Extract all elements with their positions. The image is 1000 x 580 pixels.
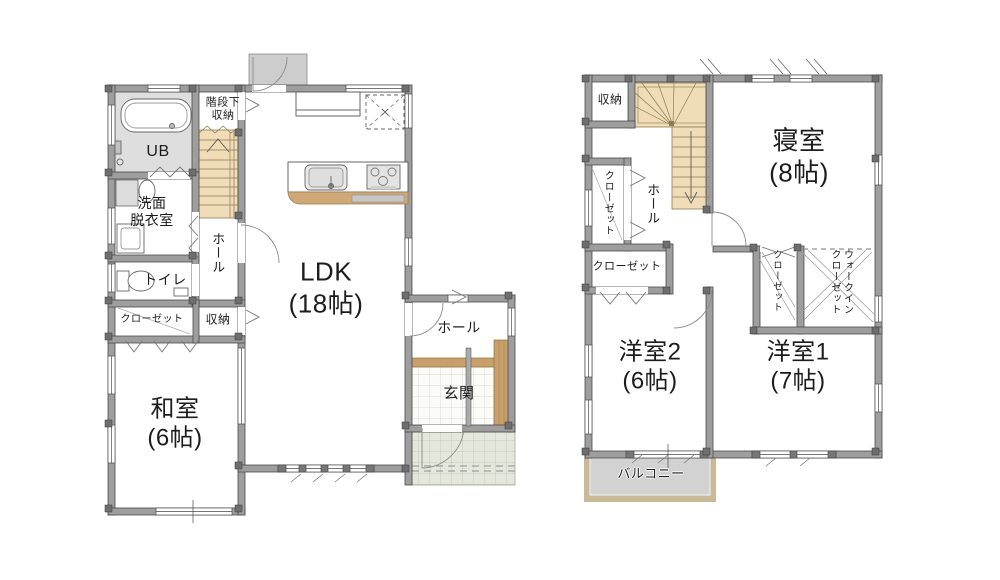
room-label-hall-2f: ホール — [644, 183, 660, 225]
room-label-ldk: LDK (18帖) — [289, 256, 364, 319]
room-label-storage-2f: 収納 — [597, 93, 622, 108]
room-label-toilet: トイレ — [143, 271, 187, 288]
room-label-stair-storage: 階段下 収納 — [206, 97, 241, 124]
room-label-balcony: バルコニー — [617, 466, 684, 482]
room-label-closet-left-2f: クローゼット — [601, 170, 614, 236]
room-label-hall-1f: ホール — [209, 232, 225, 274]
room-label-washroom: 洗面 脱衣室 — [130, 195, 174, 229]
toilet-tank — [117, 271, 129, 291]
kitchen-cabinet — [296, 92, 360, 116]
room-label-japanese-room: 和室 (6帖) — [147, 395, 202, 454]
room-label-western-room1: 洋室1 (7帖) — [767, 338, 830, 397]
room-label-entrance-hall: ホール — [437, 319, 481, 336]
room-label-ub: UB — [146, 142, 169, 162]
entrance-side-wood — [494, 340, 509, 426]
room-label-closet-mid-2f: クローゼット — [593, 260, 662, 273]
room-label-walk-in-closet: ウォークイン クローゼット — [828, 249, 853, 315]
room-label-storage-1f: 収納 — [205, 313, 230, 328]
stairs-2f-winder — [634, 83, 710, 127]
room-label-closet-small-2f: クローゼット — [770, 250, 782, 313]
room-label-bedroom: 寝室 (8帖) — [769, 125, 829, 188]
room-label-closet-1f: クローゼット — [121, 314, 184, 326]
floorplan-canvas: 階段下 収納 UB 洗面 脱衣室 トイレ ホール クローゼット 収納 和室 (6… — [0, 0, 1000, 580]
room-label-western-room2: 洋室2 (6帖) — [619, 338, 682, 397]
room-label-entrance: 玄関 — [443, 385, 474, 403]
entrance-step-wood — [412, 358, 495, 367]
